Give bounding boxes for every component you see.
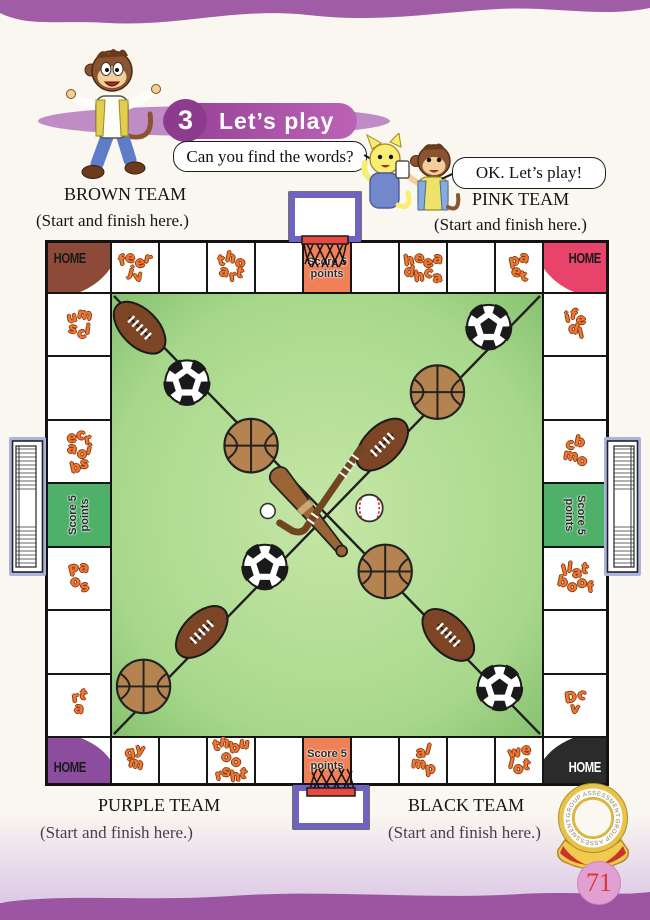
board-cell-bottom-2-letters: thbuoorsht (207, 737, 255, 784)
lesson-number-badge: 3 (164, 99, 207, 142)
game-board: feerjvthoartScore 5pointsheeadhcapaetgym… (45, 240, 609, 786)
board-cell-top-6-letters: heeadhca (399, 242, 447, 293)
hoop-net (304, 244, 346, 267)
scrambled-letter: r (143, 251, 153, 266)
board-cell-bottom-1-empty (159, 737, 207, 784)
board-cell-top-0-letters: feerjv (111, 242, 159, 293)
home-cell-brown: HOME (47, 242, 111, 293)
soccer-goal-left (9, 437, 46, 576)
board-cell-left-0-letters: umsci (47, 293, 111, 356)
board-cell-bottom-7-empty (447, 737, 495, 784)
baseball (356, 495, 383, 522)
score-text: points (311, 268, 344, 280)
answer-speech-bubble: OK. Let’s play! (452, 157, 606, 189)
monkey-hand (67, 90, 76, 99)
board-cell-top-2-letters: thoart (207, 242, 255, 293)
home-cell-purple: HOME (47, 737, 111, 784)
board-cell-left-1-empty (47, 356, 111, 419)
board-cell-top-8-letters: paet (495, 242, 543, 293)
scrambled-letter: t (519, 269, 529, 284)
cat-arm (364, 163, 370, 179)
board-cell-left-score: Score 5points (47, 483, 111, 546)
scrambled-letter: a (79, 561, 90, 576)
board-cell-left-4-letters: Paos (47, 547, 111, 610)
board-cell-right-4-letters: llatboof (543, 547, 607, 610)
bottom-wave-decoration (0, 885, 650, 920)
scrambled-letter: l (424, 743, 432, 758)
basketball-hoop-bottom (292, 768, 372, 830)
lesson-banner: 3 Let’s play (163, 103, 357, 139)
scrambled-letter: s (79, 580, 90, 595)
scrambled-letter: m (127, 756, 145, 773)
scrambled-letter: a (519, 250, 531, 265)
word-card (396, 161, 409, 178)
page-number: 71 (586, 868, 612, 898)
board-cell-right-0-letters: ifedl (543, 293, 607, 356)
lesson-title: Let’s play (219, 108, 334, 135)
monkey-shoe (82, 166, 104, 179)
board-cell-left-6-letters: rta (47, 674, 111, 737)
scrambled-letter: t (522, 758, 530, 773)
scrambled-letter: t (239, 767, 248, 782)
home-cell-pink: HOME (543, 242, 607, 293)
scrambled-letter: m (76, 307, 93, 323)
pink-team-label: PINK TEAM (472, 189, 569, 210)
field-graphics (112, 294, 542, 736)
board-cell-right-2-letters: cbmo (543, 420, 607, 483)
monkey-vest (418, 181, 426, 210)
home-label: HOME (568, 251, 600, 267)
board-cell-bottom-0-letters: gym (111, 737, 159, 784)
playing-field (111, 293, 543, 737)
page-number-badge: 71 (577, 861, 621, 905)
scrambled-letter: f (586, 581, 594, 596)
scrambled-letter: i (84, 322, 90, 336)
score-text: Score 5 (67, 480, 79, 550)
board-cell-right-5-empty (543, 610, 607, 673)
scrambled-letter: l (576, 326, 584, 341)
board-cell-top-7-empty (447, 242, 495, 293)
scrambled-letter: a (432, 251, 443, 266)
walking-monkey-character (66, 40, 174, 192)
scrambled-letter: v (132, 269, 144, 285)
brown-team-note: (Start and finish here.) (36, 211, 189, 231)
scrambled-letter: a (432, 270, 444, 286)
board-cell-bottom-8-letters: welot (495, 737, 543, 784)
scrambled-letter: s (79, 456, 89, 471)
lesson-number: 3 (178, 105, 193, 136)
score-text: points (79, 480, 91, 550)
scrambled-letter: o (577, 453, 588, 468)
question-speech-bubble: Can you find the words? (173, 141, 367, 172)
brown-team-label: BROWN TEAM (64, 184, 186, 205)
top-wave-decoration (0, 0, 650, 30)
score-text: points (563, 480, 575, 550)
board-cell-left-2-letters: ecraoibs (47, 420, 111, 483)
monkey-shoe (125, 162, 145, 174)
board-cell-left-5-empty (47, 610, 111, 673)
scrambled-letter: u (239, 737, 251, 753)
scrambled-letter: v (570, 702, 581, 717)
monkey-tail (448, 195, 458, 209)
home-label: HOME (568, 760, 600, 776)
board-cell-bottom-6-letters: almp (399, 737, 447, 784)
hoop-rim (307, 788, 355, 796)
score-text: Score 5 (575, 480, 587, 550)
board-cell-right-score: Score 5points (543, 483, 607, 546)
scrambled-letter: a (74, 702, 85, 717)
hoop-rim (302, 236, 348, 244)
home-label: HOME (54, 760, 86, 776)
scrambled-letter: b (573, 434, 586, 450)
soccer-goal-right (604, 437, 641, 576)
textbook-page: 3 Let’s play Can you find the words? OK.… (0, 0, 650, 920)
board-cell-right-6-letters: Dcv (543, 674, 607, 737)
score-text: Score 5 (307, 748, 347, 760)
basketball-hoop-top (287, 190, 365, 268)
monkey-vest (119, 100, 128, 136)
cat-overalls (370, 173, 399, 208)
answer-text: OK. Let’s play! (476, 163, 582, 183)
home-label: HOME (54, 251, 86, 267)
home-cell-black: HOME (543, 737, 607, 784)
golf-ball (260, 504, 275, 519)
monkey-tail (128, 114, 151, 137)
scrambled-letter: p (425, 762, 436, 777)
monkey-vest (96, 100, 105, 136)
board-cell-right-1-empty (543, 356, 607, 419)
pink-team-note: (Start and finish here.) (434, 215, 587, 235)
board-cell-top-1-empty (159, 242, 207, 293)
monkey-hand (152, 85, 161, 94)
question-text: Can you find the words? (186, 147, 353, 167)
